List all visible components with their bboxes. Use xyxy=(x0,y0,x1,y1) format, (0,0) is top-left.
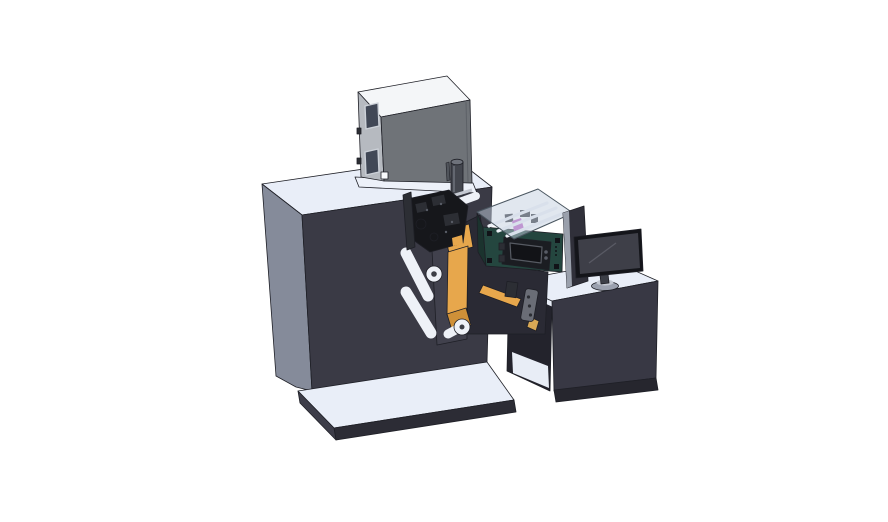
hmi-clasp-upper xyxy=(499,243,505,250)
hmi-clasp-lower xyxy=(499,255,505,262)
equipment-box-hinge-upper xyxy=(357,128,361,134)
mechanism-speck-1 xyxy=(426,209,428,211)
equipment-box-window-lower xyxy=(365,149,379,175)
hmi-screen xyxy=(510,243,542,263)
corner-pad-tl xyxy=(487,231,492,236)
vent-dot-1 xyxy=(555,246,557,248)
roller-end-dot-mid xyxy=(431,271,437,277)
vent-dot-3 xyxy=(555,254,557,256)
corner-pad-tr xyxy=(555,238,560,243)
mechanism-speck-2 xyxy=(440,203,442,205)
sensor-connector xyxy=(505,281,518,297)
bracket-dot-2 xyxy=(528,304,531,307)
exhaust-cylinder-body xyxy=(451,162,463,196)
equipment-box xyxy=(355,76,477,196)
corner-pad-br xyxy=(554,264,559,269)
bracket-dot-3 xyxy=(529,313,532,316)
cad-render-page xyxy=(0,0,888,522)
mechanism-speck-4 xyxy=(445,231,447,233)
mechanism-gear-1 xyxy=(416,219,426,229)
cad-render xyxy=(0,0,888,522)
web-vertical-band xyxy=(447,246,468,315)
hmi-button-1 xyxy=(544,250,548,254)
equipment-box-hinge-lower xyxy=(357,158,361,164)
equipment-box-window-upper xyxy=(365,103,379,129)
monitor-screen xyxy=(578,233,640,274)
corner-pad-bl xyxy=(487,258,492,263)
vent-dot-2 xyxy=(555,250,557,252)
equipment-box-white-label xyxy=(381,172,388,179)
mechanism-gear-2 xyxy=(430,233,438,241)
mechanism-speck-3 xyxy=(451,221,453,223)
equipment-box-vent-slot-1 xyxy=(446,162,450,181)
print-mechanism xyxy=(403,190,468,252)
roller-end-dot-bottom xyxy=(460,325,465,330)
bracket-dot-1 xyxy=(527,295,530,298)
exhaust-cylinder-top xyxy=(451,159,463,165)
hmi-button-2 xyxy=(544,256,548,260)
